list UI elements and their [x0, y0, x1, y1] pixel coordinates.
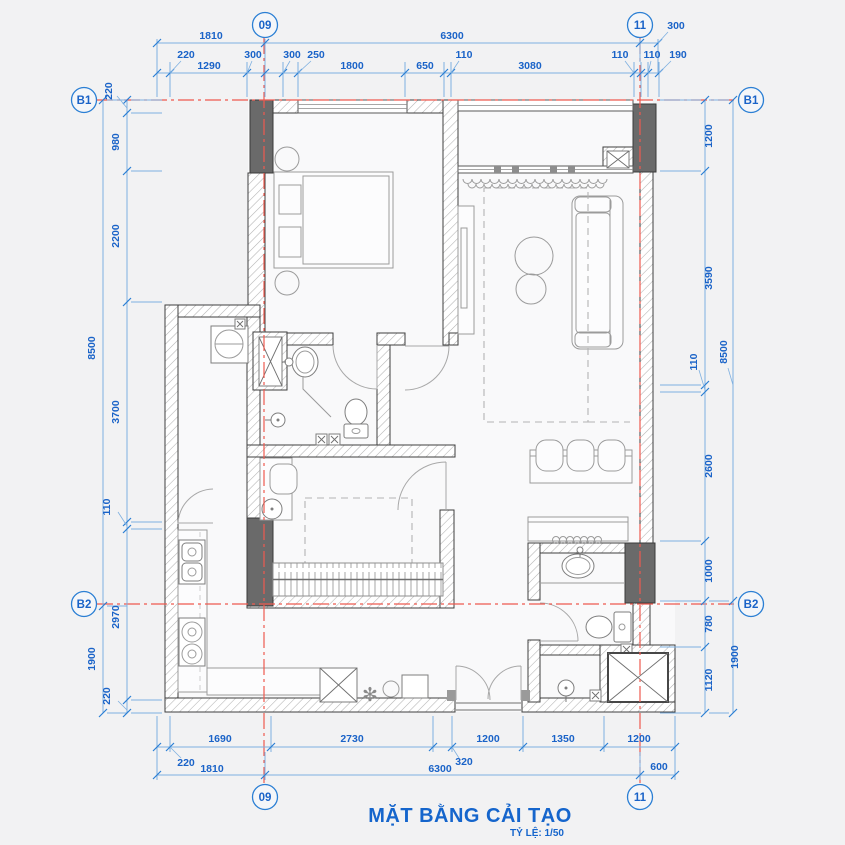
dim-bottom-inner-5: 1350 [551, 733, 575, 745]
dim-top-inner-11: 190 [669, 49, 687, 61]
ac-unit [607, 151, 629, 168]
snowflake-icon: ✻ [362, 685, 378, 706]
dim-bottom-inner-4: 1200 [476, 733, 500, 745]
dim-top-inner-4: 250 [307, 49, 325, 61]
dim-right-inner-0: 1200 [703, 124, 715, 148]
dim-top-inner-3: 300 [283, 49, 301, 61]
grid-bubble-b1-left: B1 [72, 88, 97, 113]
hall-cabinet [528, 517, 628, 544]
svg-text:B1: B1 [744, 95, 759, 107]
floor-plan-drawing: ✻ [0, 0, 845, 845]
stove [179, 618, 205, 666]
drawing-title-block: MẶT BẰNG CẢI TẠO TỶ LỆ: 1/50 [368, 803, 572, 839]
dim-top-inner-10: 110 [644, 49, 661, 61]
sofa [572, 196, 623, 349]
dim-bottom-outer-0: 1810 [200, 763, 224, 775]
svg-text:09: 09 [259, 20, 272, 32]
dim-right-inner-1: 3590 [703, 266, 715, 290]
dim-left-inner-6: 220 [101, 687, 113, 705]
grid-bubble-b2-right: B2 [739, 592, 764, 617]
dim-bottom-inner-0: 220 [177, 757, 195, 769]
dim-left-inner-4: 110 [101, 498, 113, 515]
svg-text:B2: B2 [77, 599, 92, 611]
dim-right-inner-3: 2600 [703, 454, 715, 478]
svg-text:11: 11 [634, 20, 647, 32]
dim-left-inner-0: 220 [103, 82, 115, 100]
kitchen-sink [179, 540, 205, 584]
dim-top-outer-2: 300 [667, 20, 685, 32]
dim-top-inner-0: 220 [177, 49, 195, 61]
dim-top-inner-5: 1800 [340, 60, 364, 72]
dim-bottom-outer-1: 6300 [428, 763, 452, 775]
dim-right-inner-5: 780 [703, 615, 715, 633]
dim-top-inner-9: 110 [612, 49, 629, 61]
dim-bottom-inner-2: 2730 [340, 733, 364, 745]
drawing-scale: TỶ LỆ: 1/50 [510, 826, 564, 839]
svg-text:11: 11 [634, 792, 647, 804]
dim-bottom-inner-3: 320 [455, 756, 473, 768]
tv-cabinet [458, 206, 474, 334]
elevator-shaft [608, 653, 668, 702]
dim-left-inner-1: 980 [110, 133, 122, 151]
grid-bubble-b2-left: B2 [72, 592, 97, 617]
dim-right-outer-1: 1900 [729, 645, 741, 669]
washing-machine [211, 319, 248, 363]
svg-text:B1: B1 [77, 95, 92, 107]
dim-left-outer-1: 1900 [86, 647, 98, 671]
dim-left-inner-5: 2970 [110, 605, 122, 629]
page-title: MẶT BẰNG CẢI TẠO [368, 803, 572, 827]
dim-top-inner-1: 1290 [197, 60, 221, 72]
dim-top-inner-6: 650 [416, 60, 434, 72]
dim-left-inner-3: 3700 [110, 400, 122, 424]
dim-top-inner-7: 110 [456, 49, 473, 61]
svg-text:B2: B2 [744, 599, 759, 611]
grid-bubble-09-bottom: 09 [253, 785, 278, 810]
dim-right-inner-6: 1120 [703, 668, 715, 691]
dining-table [530, 440, 632, 483]
dim-right-outer-0: 8500 [718, 340, 730, 364]
floor-plan-canvas: ✻ [0, 0, 845, 845]
dim-left-outer-0: 8500 [86, 336, 98, 360]
dim-top-outer-0: 1810 [199, 30, 223, 42]
grid-bubble-b1-right: B1 [739, 88, 764, 113]
dim-right-inner-2: 110 [688, 353, 700, 370]
grid-bubble-09-top: 09 [253, 13, 278, 38]
dim-left-inner-2: 2200 [110, 224, 122, 248]
svg-text:09: 09 [259, 792, 272, 804]
dim-bottom-outer-2: 600 [650, 761, 668, 773]
bedroom2-desk [260, 458, 297, 520]
dim-bottom-inner-1: 1690 [208, 733, 232, 745]
dim-top-outer-1: 6300 [440, 30, 464, 42]
dim-bottom-inner-6: 1200 [627, 733, 651, 745]
grid-bubble-11-top: 11 [628, 13, 653, 38]
wardrobe [273, 563, 443, 596]
grid-bubble-11-bottom: 11 [628, 785, 653, 810]
dim-right-inner-4: 1000 [703, 559, 715, 583]
dim-top-inner-8: 3080 [518, 60, 542, 72]
dim-top-inner-2: 300 [244, 49, 262, 61]
